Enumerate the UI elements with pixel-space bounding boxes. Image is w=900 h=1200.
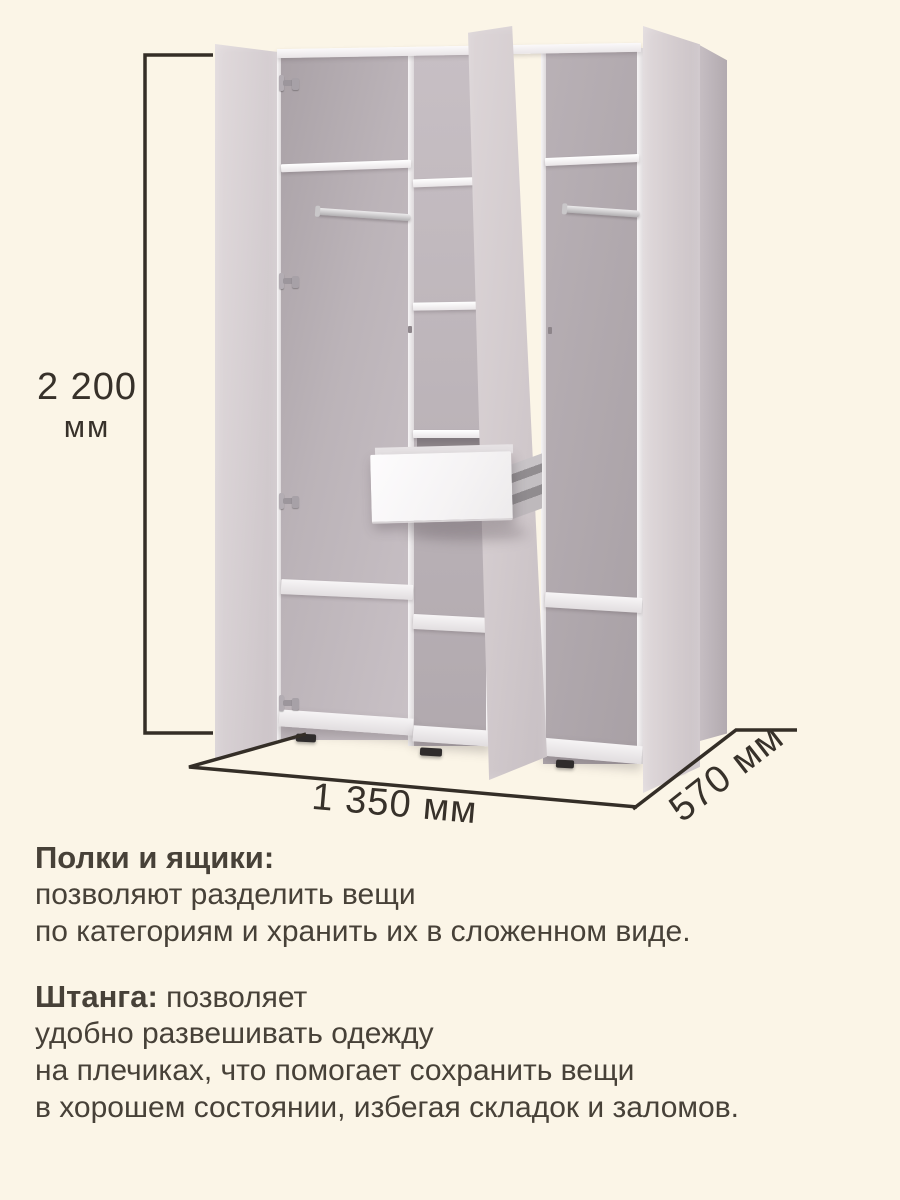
- feature-text: Полки и ящики: позволяют разделить вещи …: [35, 839, 880, 1126]
- width-label: 1 350 мм: [286, 774, 504, 836]
- right-door-open: [643, 26, 700, 793]
- feature-line: на плечиках, что помогает сохранить вещи: [35, 1052, 880, 1089]
- door-hinge: [279, 490, 299, 512]
- height-dimension-line: [145, 55, 213, 733]
- left-compartment-interior: [277, 52, 412, 740]
- left-door-open: [215, 44, 277, 761]
- product-card: 2 200 мм 1 350 мм 570 мм Полки и ящики: …: [0, 0, 900, 1200]
- feature-heading: Штанга:: [35, 979, 158, 1014]
- height-label: 2 200 мм: [28, 366, 146, 445]
- foot: [556, 760, 574, 769]
- right-side-panel: [699, 42, 727, 744]
- panel-edge: [408, 52, 414, 746]
- panel-edge: [541, 50, 546, 750]
- feature-heading-rest: позволяет: [158, 981, 308, 1014]
- door-hinge: [279, 270, 299, 292]
- cam-lock: [408, 326, 412, 333]
- feature-heading: Полки и ящики:: [35, 840, 274, 875]
- feature-line: позволяют разделить вещи: [35, 876, 880, 913]
- door-hinge: [279, 72, 299, 94]
- height-unit: мм: [28, 409, 146, 445]
- height-value: 2 200: [28, 366, 146, 409]
- foot: [296, 733, 316, 742]
- door-hinge: [279, 692, 299, 714]
- feature-line: по категориям и хранить их в сложенном в…: [35, 913, 880, 950]
- feature-hanging-rod: Штанга: позволяет удобно развешивать оде…: [35, 978, 880, 1126]
- feature-line: в хорошем состоянии, избегая складок и з…: [35, 1089, 880, 1126]
- drawer-shadow: [408, 525, 528, 541]
- feature-shelves-and-drawers: Полки и ящики: позволяют разделить вещи …: [35, 839, 880, 950]
- feature-line: удобно развешивать одежду: [35, 1015, 880, 1052]
- cam-lock: [548, 327, 552, 334]
- foot: [420, 747, 442, 756]
- panel-edge: [277, 52, 281, 740]
- drawer-front: [370, 451, 513, 524]
- drawer-slide-rail: [511, 453, 542, 519]
